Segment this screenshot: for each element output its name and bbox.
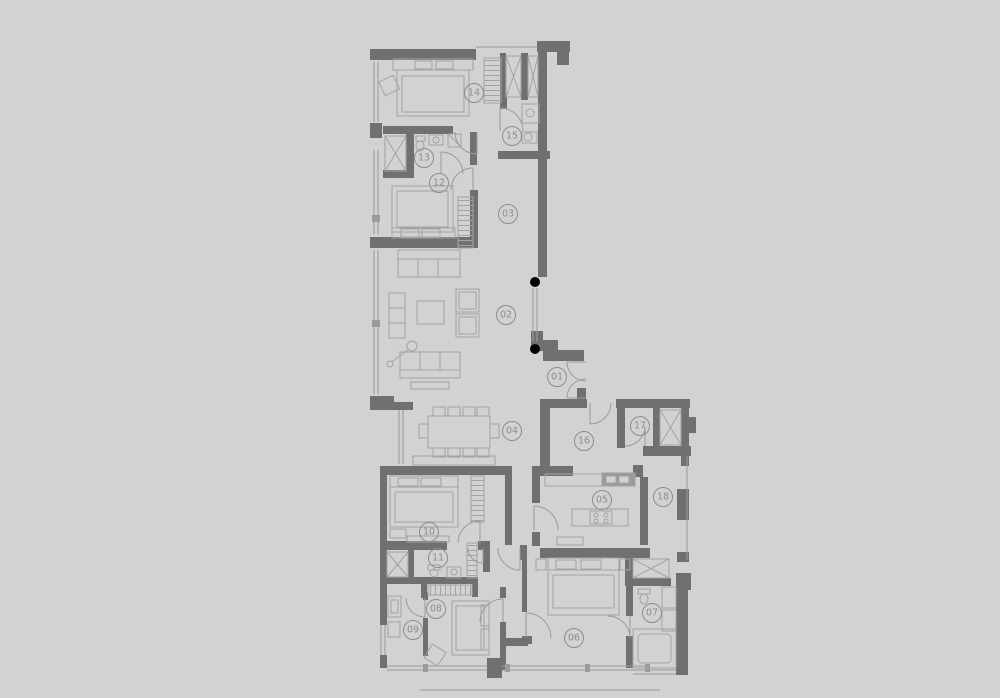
sink-bathroom-11 — [447, 567, 461, 578]
svg-text:16: 16 — [578, 436, 590, 447]
door-bathroom-13 — [441, 152, 463, 174]
svg-text:11: 11 — [432, 553, 444, 564]
side-table-bedroom-10 — [390, 529, 406, 538]
door-hallway — [498, 548, 520, 570]
room-label-hall-upper: 03 — [499, 205, 518, 224]
sofa-living-bottom — [400, 352, 460, 378]
svg-text:18: 18 — [657, 492, 669, 503]
door-bathroom-15 — [500, 108, 523, 131]
room-label-lobby: 17 — [631, 417, 650, 436]
svg-text:01: 01 — [551, 372, 563, 383]
dining-table — [419, 407, 499, 457]
room-label-bedroom-north: 12 — [430, 174, 449, 193]
svg-text:08: 08 — [430, 604, 442, 615]
duct-shaft-west — [387, 552, 408, 577]
room-label-bedroom-top: 14 — [465, 84, 484, 103]
svg-text:05: 05 — [596, 495, 608, 506]
door-bedroom-06 — [526, 613, 551, 638]
column-marker — [530, 277, 540, 287]
bed-bedroom-06 — [536, 558, 630, 615]
duct-shaft-southeast — [633, 559, 669, 578]
vanity-bathroom-15 — [522, 104, 539, 123]
svg-text:12: 12 — [433, 178, 445, 189]
walls — [370, 41, 696, 678]
wardrobe-bedroom-10 — [471, 476, 484, 522]
svg-text:10: 10 — [423, 527, 435, 538]
svg-text:14: 14 — [468, 88, 480, 99]
bed-bedroom-10 — [390, 476, 458, 527]
duct-shaft-north — [385, 136, 406, 171]
coffee-table-living — [417, 301, 444, 324]
cabinet-bathroom-07 — [662, 587, 676, 631]
room-label-bathroom-top: 15 — [503, 127, 522, 146]
toilet-bathroom-07 — [638, 589, 650, 604]
door-study-09 — [406, 598, 425, 617]
room-label-bedroom-middle: 10 — [420, 523, 439, 542]
column-marker — [530, 344, 540, 354]
sink-bathroom-13 — [429, 135, 443, 145]
svg-text:06: 06 — [568, 633, 580, 644]
room-label-dining-area: 04 — [503, 422, 522, 441]
room-label-bathroom-main: 07 — [643, 604, 662, 623]
duct-shaft-top-b — [528, 56, 538, 97]
desk-study-09 — [388, 596, 401, 617]
door-bathroom-07 — [608, 616, 630, 638]
svg-text:07: 07 — [646, 608, 658, 619]
bathtub-bathroom-07 — [633, 629, 676, 668]
svg-text:17: 17 — [634, 421, 646, 432]
tv-console-living — [411, 382, 449, 389]
shelf-living — [389, 293, 405, 338]
kitchen-sink — [602, 473, 635, 486]
cabinet-study-09 — [388, 622, 400, 637]
room-label-study: 09 — [404, 621, 423, 640]
armchair-living-2 — [456, 314, 479, 337]
door-foyer-16 — [590, 403, 611, 424]
door-bedroom-08 — [480, 599, 503, 622]
room-label-bedroom-south: 08 — [427, 600, 446, 619]
svg-text:09: 09 — [407, 625, 419, 636]
svg-text:02: 02 — [500, 310, 512, 321]
floor-lamp-living — [387, 341, 417, 367]
door-kitchen-05 — [534, 506, 558, 530]
door-bedroom-12 — [451, 168, 473, 190]
sofa-living-top — [398, 250, 460, 277]
armchair-living-1 — [456, 289, 479, 312]
room-label-service-corridor: 18 — [654, 488, 673, 507]
wardrobe-bedroom-14 — [484, 58, 501, 103]
toilet-bathroom-15 — [522, 132, 537, 143]
svg-text:13: 13 — [418, 153, 430, 164]
room-label-kitchen: 05 — [593, 491, 612, 510]
svg-text:04: 04 — [506, 426, 518, 437]
wardrobe-bedroom-08 — [428, 585, 472, 595]
bed-bedroom-12 — [392, 186, 455, 238]
elevator-shaft-east — [660, 410, 681, 445]
svg-text:03: 03 — [502, 209, 514, 220]
kitchen-cabinet — [557, 537, 583, 545]
kitchen-island — [572, 509, 628, 526]
floor-plan-drawing: 010203040506070809101112131415161718 — [0, 0, 1000, 698]
wardrobe-bedroom-12 — [458, 197, 473, 248]
svg-text:15: 15 — [506, 131, 518, 142]
bed-bedroom-14 — [393, 59, 473, 116]
duct-shaft-top-a — [506, 56, 521, 97]
room-label-foyer: 16 — [575, 432, 594, 451]
door-bedroom-10 — [458, 521, 480, 543]
room-label-living-room: 02 — [497, 306, 516, 325]
room-label-bedroom-main: 06 — [565, 629, 584, 648]
floor-plan-canvas: 010203040506070809101112131415161718 — [0, 0, 1000, 698]
room-label-entry: 01 — [548, 368, 567, 387]
room-label-bathroom-north: 13 — [415, 149, 434, 168]
